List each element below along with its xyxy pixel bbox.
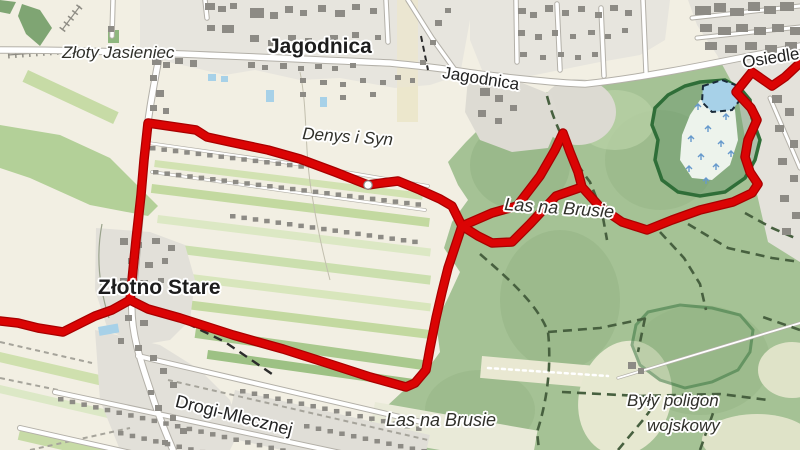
label-zlotno-stare: Złotno Stare [98,277,221,298]
map-canvas[interactable]: Złoty Jasieniec Jagodnica Jagodnica Deny… [0,0,800,450]
route-point-marker [364,181,372,189]
map-svg [0,0,800,450]
label-jagodnica-place: Jagodnica [268,36,372,57]
label-zloty-jasieniec: Złoty Jasieniec [62,44,174,61]
label-las-na-brusie-lower: Las na Brusie [386,411,496,429]
label-byly-poligon-line2: wojskowy [647,417,720,434]
label-byly-poligon-line1: Były poligon [627,392,719,409]
